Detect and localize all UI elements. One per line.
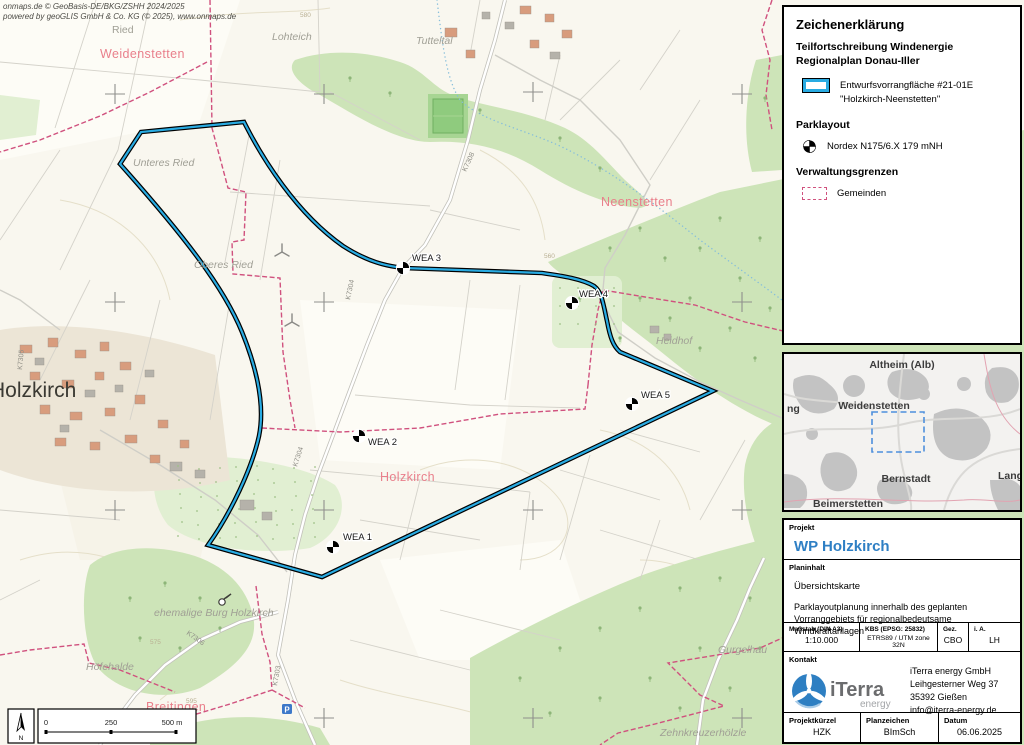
map-attribution-line2: powered by geoGLIS GmbH & Co. KG (© 2025… <box>2 12 237 21</box>
map-label: ehemalige Burg Holzkirch <box>154 607 274 619</box>
contour-label: 560 <box>544 253 555 260</box>
sports-field <box>428 94 468 138</box>
map-label: Holzkirch <box>380 470 435 484</box>
vorrangflaeche-swatch <box>802 78 830 93</box>
svg-text:P: P <box>284 706 290 715</box>
svg-text:250: 250 <box>105 718 118 727</box>
contour-label: 595 <box>186 698 197 705</box>
wea-turbine-marker[interactable] <box>352 429 365 442</box>
map-label: Heidhof <box>656 335 693 347</box>
svg-text:energy: energy <box>860 699 891 710</box>
svg-text:N: N <box>19 735 24 742</box>
project-label: Projekt <box>784 520 1020 532</box>
footer-col2-header: Datum <box>939 713 1020 725</box>
map-attribution-line1: onmaps.de © GeoBasis-DE/BKG/ZSHH 2024/20… <box>3 2 185 11</box>
meta-col3-value: LH <box>969 633 1020 645</box>
project-section: Projekt WP Holzkirch <box>784 520 1020 559</box>
meta-col3-header: i. A. <box>969 623 1020 633</box>
plan-section: Planinhalt Übersichtskarte Parklayoutpla… <box>784 559 1020 622</box>
meta-col2-header: Gez. <box>938 623 968 633</box>
footer-col0-value: HZK <box>784 725 860 737</box>
plan-subtitle: Übersichtskarte <box>794 581 1020 592</box>
gemeinden-swatch <box>802 187 827 200</box>
kontakt-address: iTerra energy GmbH Leihgesterner Weg 37 … <box>910 665 998 717</box>
kontakt-label: Kontakt <box>784 652 1020 664</box>
svg-text:iTerra: iTerra <box>830 679 885 701</box>
footer-col0-header: Projektkürzel <box>784 713 860 725</box>
overview-place-label: Beimerstetten <box>813 498 883 510</box>
map-label: Höfehalde <box>86 661 134 673</box>
project-name: WP Holzkirch <box>794 538 1020 555</box>
legend-gemeinden-label: Gemeinden <box>837 186 886 201</box>
legend-section-parklayout: Parklayout <box>796 119 1008 131</box>
legend-area-line1: Entwurfsvorrangfläche #21-01E <box>840 79 973 93</box>
overview-place-label: Altheim (Alb) <box>869 359 934 371</box>
map-label: Weidenstetten <box>100 47 185 61</box>
plan-label: Planinhalt <box>784 560 1020 572</box>
legend-title: Zeichenerklärung <box>796 17 1008 32</box>
plan-viewer: P WEA 1WEA 2WEA 3WEA 4WEA 5 RiedWeidenst… <box>0 0 1024 745</box>
overview-place-label: Weidenstetten <box>838 400 910 412</box>
wea-label: WEA 1 <box>343 532 372 543</box>
kontakt-city: 35392 Gießen <box>910 691 998 704</box>
meta-col2-value: CBO <box>938 633 968 645</box>
map-label: Tutteltal <box>416 35 453 47</box>
meta-table: Maßstab (DIN A3)1:10.000 KBS (EPSG: 2583… <box>784 622 1020 651</box>
meta-col0-header: Maßstab (DIN A3) <box>784 623 859 633</box>
meta-col0-value: 1:10.000 <box>784 633 859 645</box>
svg-text:500 m: 500 m <box>162 718 183 727</box>
legend-item-vorrangflaeche: Entwurfsvorrangfläche #21-01E "Holzkirch… <box>802 78 1008 107</box>
kontakt-company: iTerra energy GmbH <box>910 665 998 678</box>
footer-col1-value: BImSch <box>861 725 938 737</box>
north-arrow: N <box>8 709 34 743</box>
turbine-icon <box>802 139 817 154</box>
wea-turbine-marker[interactable] <box>625 397 638 410</box>
title-block: Projekt WP Holzkirch Planinhalt Übersich… <box>782 518 1022 744</box>
legend-item-gemeinden: Gemeinden <box>802 186 1008 201</box>
overview-map: Altheim (Alb)WeidenstettenBernstadtLange… <box>784 354 1020 510</box>
kontakt-street: Leihgesterner Weg 37 <box>910 678 998 691</box>
legend-section-verwaltungsgrenzen: Verwaltungsgrenzen <box>796 166 1008 178</box>
svg-text:0: 0 <box>44 718 48 727</box>
contour-label: 580 <box>300 12 311 19</box>
wea-turbine-marker[interactable] <box>565 296 578 309</box>
map-label: Oberes Ried <box>194 259 254 271</box>
overview-place-label: ng <box>787 403 800 415</box>
wea-label: WEA 4 <box>579 289 608 300</box>
parking-icon: P <box>282 704 292 715</box>
legend-subtitle: Teilfortschreibung Windenergie Regionalp… <box>796 40 1008 68</box>
overview-place-label: Bernstadt <box>881 473 931 485</box>
contour-label: 575 <box>150 639 161 646</box>
map-label: Zehnkreuzerhölzle <box>659 727 747 739</box>
wea-turbine-marker[interactable] <box>396 261 409 274</box>
legend-area-line2: "Holzkirch-Neenstetten" <box>840 93 973 107</box>
wea-label: WEA 2 <box>368 437 397 448</box>
meta-col1-value: ETRS89 / UTM zone 32N <box>860 633 937 649</box>
wea-turbine-marker[interactable] <box>326 540 339 553</box>
map-label: Neenstetten <box>601 195 673 209</box>
footer-table: ProjektkürzelHZK PlanzeichenBImSch Datum… <box>784 712 1020 744</box>
overview-place-label: Langenau <box>998 470 1020 482</box>
map-label: Ried <box>112 24 134 36</box>
map-label: Unteres Ried <box>133 157 195 169</box>
wea-label: WEA 5 <box>641 390 670 401</box>
meta-col1-header: KBS (EPSG: 25832) <box>860 623 937 633</box>
map-label: Gurgelhau <box>718 644 767 656</box>
map-label: Holzkirch <box>0 379 76 402</box>
legend-item-turbine: Nordex N175/6.X 179 mNH <box>802 139 1008 154</box>
footer-col2-value: 06.06.2025 <box>939 725 1020 737</box>
scale-bar: 0 250 500 m <box>38 709 196 743</box>
wea-label: WEA 3 <box>412 253 441 264</box>
legend-turbine-label: Nordex N175/6.X 179 mNH <box>827 139 943 154</box>
legend-panel: Zeichenerklärung Teilfortschreibung Wind… <box>782 5 1022 345</box>
overview-map-panel[interactable]: Altheim (Alb)WeidenstettenBernstadtLange… <box>782 352 1022 512</box>
footer-col1-header: Planzeichen <box>861 713 938 725</box>
kontakt-section: Kontakt iTerra energy iTerra energy GmbH <box>784 651 1020 712</box>
iterra-logo: iTerra energy <box>790 670 902 712</box>
map-label: Lohteich <box>272 31 312 43</box>
